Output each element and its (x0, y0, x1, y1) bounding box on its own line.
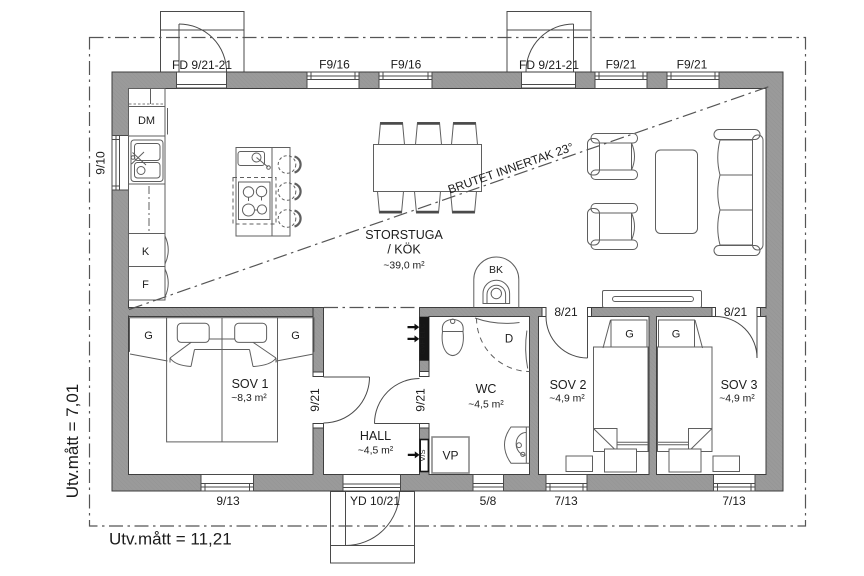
svg-text:7/13: 7/13 (554, 494, 578, 508)
svg-text:~4,9 m²: ~4,9 m² (549, 394, 585, 405)
svg-text:5/8: 5/8 (480, 494, 497, 508)
svg-text:9/21: 9/21 (308, 388, 322, 412)
svg-text:SOV 1: SOV 1 (232, 377, 269, 391)
svg-text:~4,5 m²: ~4,5 m² (358, 446, 394, 457)
svg-text:WC: WC (476, 382, 497, 396)
svg-text:FD 9/21-21: FD 9/21-21 (172, 58, 232, 72)
svg-text:9/13: 9/13 (216, 494, 240, 508)
svg-text:YD 10/21: YD 10/21 (350, 494, 400, 508)
svg-text:F9/21: F9/21 (606, 58, 637, 72)
svg-text:8/21: 8/21 (554, 305, 578, 319)
svg-text:~4,5 m²: ~4,5 m² (468, 400, 504, 411)
svg-text:F9/21: F9/21 (677, 58, 708, 72)
svg-text:SOV 2: SOV 2 (550, 378, 587, 392)
svg-text:SOV 3: SOV 3 (721, 378, 758, 392)
svg-text:Utv.mått = 7,01: Utv.mått = 7,01 (63, 384, 82, 498)
svg-text:/ KÖK: / KÖK (387, 243, 421, 257)
svg-text:FD 9/21-21: FD 9/21-21 (519, 58, 579, 72)
svg-text:~8,3 m²: ~8,3 m² (231, 393, 267, 404)
svg-text:STORSTUGA: STORSTUGA (365, 228, 443, 242)
svg-text:F: F (142, 279, 149, 291)
svg-text:G: G (291, 330, 300, 342)
svg-text:DM: DM (138, 115, 155, 127)
svg-text:G: G (144, 330, 153, 342)
svg-text:D: D (505, 334, 513, 346)
svg-text:G: G (672, 329, 681, 341)
svg-text:V/S: V/S (418, 449, 427, 461)
svg-text:VP: VP (442, 449, 458, 463)
svg-text:8/21: 8/21 (724, 305, 748, 319)
svg-text:F9/16: F9/16 (391, 58, 422, 72)
svg-text:9/21: 9/21 (414, 388, 428, 412)
svg-text:G: G (625, 329, 634, 341)
svg-text:9/10: 9/10 (94, 151, 108, 175)
svg-text:K: K (142, 246, 150, 258)
svg-text:GVF EL C: GVF EL C (420, 323, 427, 354)
svg-text:HALL: HALL (360, 429, 391, 443)
svg-text:~4,9 m²: ~4,9 m² (719, 394, 755, 405)
svg-text:F9/16: F9/16 (319, 58, 350, 72)
svg-text:Utv.mått = 11,21: Utv.mått = 11,21 (109, 530, 232, 549)
svg-text:BK: BK (489, 264, 503, 276)
svg-text:~39,0 m²: ~39,0 m² (383, 261, 425, 272)
svg-text:7/13: 7/13 (722, 494, 746, 508)
